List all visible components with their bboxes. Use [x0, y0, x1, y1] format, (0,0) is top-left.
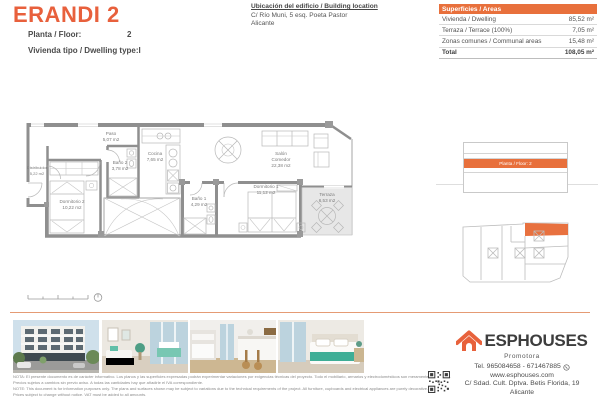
room-label-cocina: Cocina — [148, 151, 163, 156]
location-street: C/ Río Muni, 5 esq. Poeta Pastor — [251, 12, 378, 21]
area-label: Vivienda / Dwelling — [439, 14, 558, 25]
bathroom1-fixtures — [184, 204, 215, 234]
patio-lightwell — [104, 198, 180, 236]
floor-value: 2 — [127, 30, 131, 39]
photo-building-exterior — [13, 320, 99, 373]
room-label-dormitorio2: Dormitorio 2 — [59, 199, 84, 204]
dwelling-type-value: I — [139, 46, 141, 55]
area-value: 7,05 m² — [558, 25, 598, 36]
total-value: 108,05 m² — [558, 47, 598, 58]
contact-phone: Tel. 965084658 - 671467885 — [474, 363, 561, 372]
note-en-2: Prices subject to change without notice.… — [13, 392, 427, 398]
floor-label: Planta / Floor: — [28, 30, 127, 39]
esphouses-house-icon — [456, 330, 482, 352]
table-row: Terraza / Terrace (100%) 7,05 m² — [439, 25, 597, 36]
contact-block: Tel. 965084658 - 671467885 www.esphouses… — [448, 363, 596, 397]
elevation-floor-highlight: Planta / Floor: 2 — [464, 159, 567, 168]
bedroom2-furniture — [50, 162, 98, 233]
room-area-dormitorio2: 10,22 m2 — [62, 205, 82, 210]
room-label-terraza: Terraza — [319, 192, 335, 197]
dwelling-type-row: Vivienda tipo / Dwelling type: I — [28, 46, 141, 55]
floor-row: Planta / Floor: 2 — [28, 30, 131, 39]
area-value: 15,48 m² — [558, 36, 598, 47]
room-area-dormitorio1: 11,12 m2 — [257, 190, 276, 195]
location-heading: Ubicación del edificio / Building locati… — [251, 3, 378, 12]
room-area-distribuidor: 5,22 m2 — [30, 171, 45, 176]
elevation-floor — [464, 173, 567, 192]
area-label: Terraza / Terrace (100%) — [439, 25, 558, 36]
location-city: Alicante — [251, 20, 378, 29]
room-label-bano1: Baño 1 — [192, 196, 207, 201]
brand-subtitle: Promotora — [452, 353, 592, 360]
contact-website: www.esphouses.com — [448, 372, 596, 381]
whatsapp-icon — [563, 364, 570, 371]
building-elevation: Planta / Floor: 2 — [463, 142, 568, 193]
room-area-cocina: 7,65 m2 — [147, 157, 164, 162]
brand-name: ESPHOUSES — [484, 331, 587, 351]
building-location: Ubicación del edificio / Building locati… — [251, 3, 378, 29]
areas-table: Superficies / Areas Vivienda / Dwelling … — [439, 4, 597, 59]
brand-block: ESPHOUSES Promotora — [452, 330, 592, 360]
room-label-salon: Salón — [275, 151, 287, 156]
room-area-bano1: 4,29 m2 — [191, 202, 208, 207]
photo-living-room — [102, 320, 188, 373]
room-area-bano2: 3,78 m2 — [112, 166, 129, 171]
room-area-paso: 5,07 m2 — [103, 137, 120, 142]
divider — [10, 312, 590, 313]
room-area-terraza: 6,53 m2 — [319, 198, 336, 203]
room-label-salon2: Comedor — [272, 157, 291, 162]
photo-kitchen-dining — [190, 320, 276, 373]
contact-city: Alicante — [448, 389, 596, 398]
contact-address: C/ Sdad. Cult. Dptva. Betis Florida, 19 — [448, 380, 596, 389]
room-label-dormitorio1: Dormitorio 1 — [253, 184, 278, 189]
qr-code — [428, 371, 450, 393]
areas-table-header: Superficies / Areas — [439, 4, 597, 14]
elevation-floor — [464, 143, 567, 154]
entry-door — [28, 183, 42, 197]
table-row: Vivienda / Dwelling 85,52 m² — [439, 14, 597, 25]
highlighted-unit — [525, 223, 568, 236]
room-area-salon: 22,38 m2 — [271, 163, 291, 168]
area-label: Zonas comunes / Communal areas — [439, 36, 558, 47]
table-row: Zonas comunes / Communal areas 15,48 m² — [439, 36, 597, 47]
brochure-page: ERANDI 2 Planta / Floor: 2 Vivienda tipo… — [0, 0, 600, 400]
room-label-paso: Paso — [106, 131, 117, 136]
site-key-plan — [455, 218, 580, 290]
total-label: Total — [439, 47, 558, 58]
room-label-distribuidor: Distribuidor — [27, 165, 48, 170]
area-value: 85,52 m² — [558, 14, 598, 25]
scale-bar — [28, 294, 102, 302]
dwelling-type-label: Vivienda tipo / Dwelling type: — [28, 46, 139, 55]
table-row-total: Total 108,05 m² — [439, 47, 597, 58]
page-title: ERANDI 2 — [13, 2, 120, 28]
legal-notes: NOTA: El presente documento es de caráct… — [13, 374, 427, 398]
room-label-bano2: Baño 2 — [113, 160, 128, 165]
photo-bedroom — [278, 320, 364, 373]
floor-plan: Distribuidor 5,22 m2 Paso 5,07 m2 Baño 2… — [14, 86, 370, 308]
